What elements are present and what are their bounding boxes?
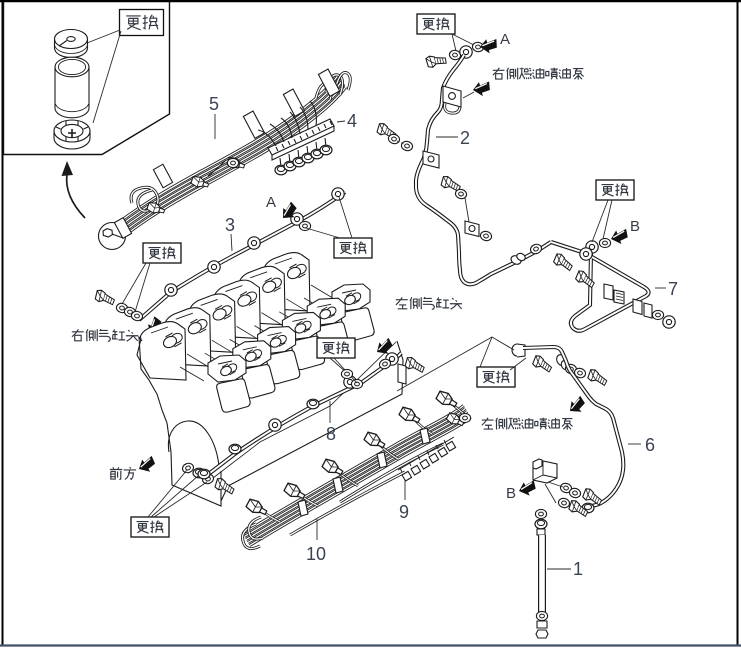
svg-text:6: 6 xyxy=(645,435,655,455)
svg-text:4: 4 xyxy=(347,111,357,131)
svg-text:2: 2 xyxy=(460,128,470,148)
svg-text:A: A xyxy=(500,31,510,48)
svg-text:B: B xyxy=(630,218,640,235)
svg-text:10: 10 xyxy=(306,544,326,564)
svg-text:3: 3 xyxy=(225,215,235,235)
svg-text:B: B xyxy=(506,485,516,502)
svg-text:1: 1 xyxy=(573,559,583,579)
svg-text:9: 9 xyxy=(399,502,409,522)
svg-text:A: A xyxy=(266,194,276,211)
svg-text:5: 5 xyxy=(209,94,219,114)
svg-text:7: 7 xyxy=(668,279,678,299)
svg-text:8: 8 xyxy=(326,424,336,444)
